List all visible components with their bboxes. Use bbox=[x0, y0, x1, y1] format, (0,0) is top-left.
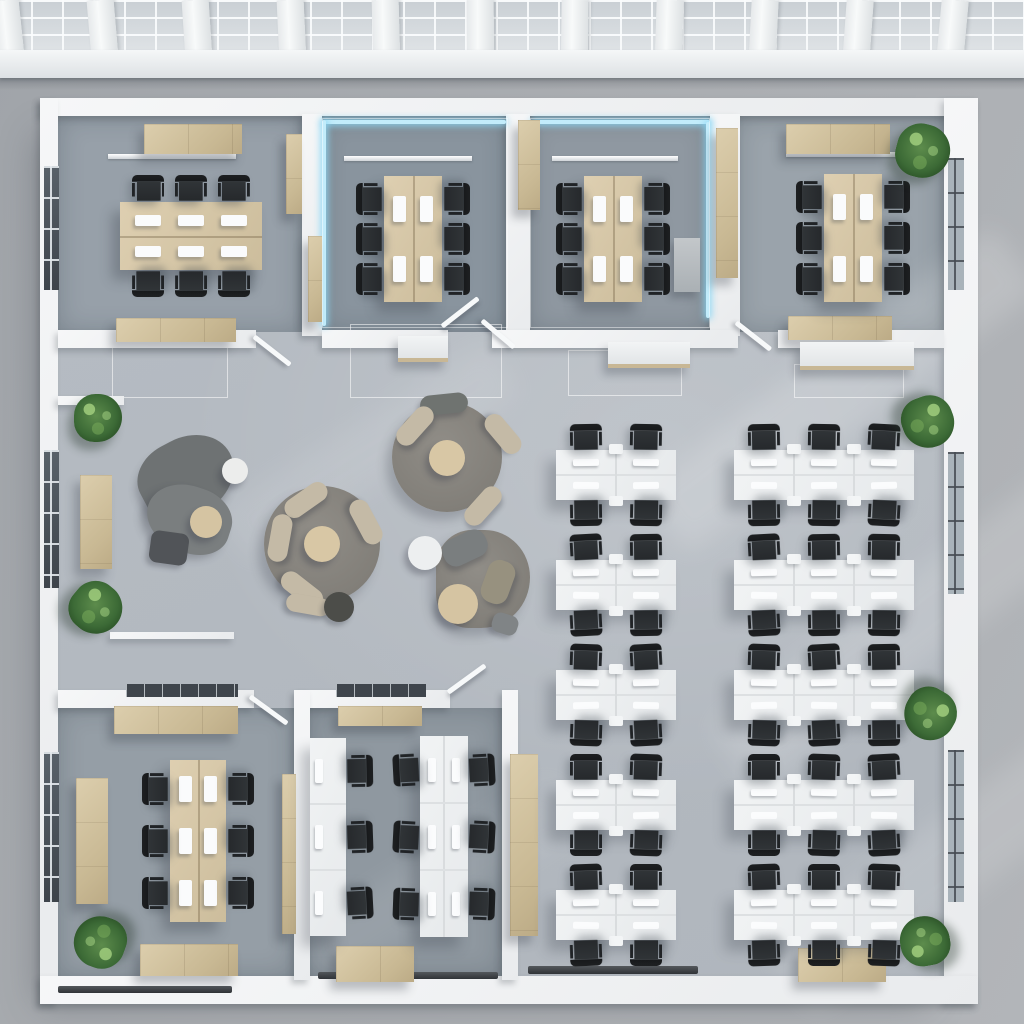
task-chair bbox=[748, 830, 780, 856]
meeting-chair bbox=[444, 263, 470, 295]
credenza bbox=[338, 706, 422, 726]
keyboard bbox=[751, 702, 777, 709]
desk-divider bbox=[853, 780, 855, 830]
notepad bbox=[833, 256, 846, 282]
monitor-mount bbox=[787, 664, 801, 674]
task-chair bbox=[748, 719, 781, 746]
notepad bbox=[204, 828, 217, 854]
desk-seam bbox=[734, 474, 914, 476]
task-chair bbox=[630, 610, 662, 637]
monitor-mount bbox=[609, 884, 623, 894]
desk-divider bbox=[443, 736, 445, 937]
monitor-mount bbox=[787, 444, 801, 454]
wall bbox=[294, 690, 310, 980]
task-chair bbox=[748, 754, 780, 780]
task-chair bbox=[630, 753, 663, 780]
credenza bbox=[786, 124, 890, 154]
keyboard bbox=[633, 569, 659, 576]
keyboard bbox=[871, 592, 897, 599]
desk-divider bbox=[793, 780, 795, 830]
keyboard bbox=[811, 922, 837, 929]
keyboard bbox=[573, 899, 599, 906]
meeting-chair bbox=[644, 263, 670, 295]
task-chair bbox=[748, 863, 781, 890]
keyboard bbox=[751, 679, 777, 686]
notepad bbox=[593, 196, 606, 222]
task-chair bbox=[569, 609, 602, 637]
keyboard bbox=[633, 922, 659, 929]
monitor-mount bbox=[609, 826, 623, 836]
keyboard bbox=[871, 922, 897, 929]
meeting-chair bbox=[644, 223, 670, 255]
desk-bank bbox=[556, 890, 676, 940]
task-chair bbox=[867, 753, 900, 781]
window bbox=[948, 158, 964, 290]
table-seam bbox=[613, 176, 615, 302]
monitor-mount bbox=[787, 826, 801, 836]
keyboard bbox=[452, 758, 460, 782]
meeting-chair bbox=[218, 271, 250, 297]
credenza bbox=[116, 318, 236, 342]
monitor-mount bbox=[609, 664, 623, 674]
monitor-mount bbox=[787, 774, 801, 784]
monitor-mount bbox=[847, 444, 861, 454]
keyboard bbox=[811, 482, 837, 489]
table-seam bbox=[120, 236, 262, 238]
ceiling-light bbox=[108, 154, 236, 159]
meeting-chair bbox=[556, 223, 582, 255]
meeting-chair bbox=[175, 271, 207, 297]
side-table bbox=[190, 506, 222, 538]
notepad bbox=[179, 828, 192, 854]
storage-cabinet bbox=[282, 774, 296, 934]
keyboard bbox=[573, 702, 599, 709]
monitor-mount bbox=[609, 936, 623, 946]
task-chair bbox=[630, 424, 662, 451]
conference-table bbox=[120, 202, 262, 270]
meeting-chair bbox=[356, 263, 382, 295]
task-chair bbox=[570, 939, 603, 966]
keyboard bbox=[811, 789, 837, 796]
desk-bank bbox=[734, 450, 914, 500]
monitor-mount bbox=[847, 936, 861, 946]
desk-bank bbox=[556, 670, 676, 720]
keyboard bbox=[428, 758, 436, 782]
notepad bbox=[393, 196, 406, 222]
window bbox=[44, 752, 59, 902]
meeting-chair bbox=[175, 175, 207, 201]
keyboard bbox=[428, 825, 436, 849]
storage-cabinet bbox=[286, 134, 302, 214]
side-table bbox=[408, 536, 442, 570]
keyboard bbox=[751, 482, 777, 489]
task-chair bbox=[747, 533, 780, 561]
meeting-chair bbox=[884, 263, 910, 295]
notepad bbox=[593, 256, 606, 282]
keyboard bbox=[751, 812, 777, 819]
keyboard bbox=[573, 922, 599, 929]
meeting-chair bbox=[228, 825, 254, 857]
ceiling-fascia bbox=[0, 50, 1024, 78]
glass-balustrade bbox=[112, 344, 228, 398]
notepad bbox=[420, 256, 433, 282]
desk-bank bbox=[734, 560, 914, 610]
notepad bbox=[179, 776, 192, 802]
keyboard bbox=[811, 459, 837, 466]
ceiling-light bbox=[344, 156, 472, 161]
task-chair bbox=[570, 424, 602, 451]
keyboard bbox=[871, 679, 897, 686]
task-chair bbox=[630, 864, 662, 890]
monitor-mount bbox=[787, 936, 801, 946]
conference-table bbox=[824, 174, 882, 302]
keyboard bbox=[871, 482, 897, 490]
keyboard bbox=[573, 482, 599, 489]
keyboard bbox=[573, 812, 599, 819]
meeting-chair bbox=[556, 263, 582, 295]
task-chair bbox=[748, 643, 781, 670]
desk-divider bbox=[615, 890, 617, 940]
task-chair bbox=[868, 863, 901, 890]
keyboard bbox=[633, 459, 659, 466]
meeting-chair bbox=[444, 223, 470, 255]
meeting-chair bbox=[228, 773, 254, 805]
task-chair bbox=[630, 940, 662, 966]
desk-seam bbox=[310, 869, 346, 871]
desk-divider bbox=[793, 890, 795, 940]
desk-divider bbox=[615, 450, 617, 500]
storage-cabinet bbox=[510, 754, 538, 936]
keyboard bbox=[751, 592, 777, 600]
task-chair bbox=[468, 887, 495, 920]
keyboard bbox=[573, 459, 599, 466]
task-chair bbox=[868, 720, 900, 747]
desk-divider bbox=[615, 560, 617, 610]
keyboard bbox=[811, 812, 837, 819]
window bbox=[948, 452, 964, 594]
conference-table bbox=[170, 760, 226, 922]
notepad bbox=[135, 215, 161, 226]
keyboard bbox=[871, 569, 897, 576]
notepad bbox=[393, 256, 406, 282]
desk-divider bbox=[853, 670, 855, 720]
task-chair bbox=[392, 820, 420, 853]
storage-cabinet bbox=[76, 778, 108, 904]
monitor-mount bbox=[609, 606, 623, 616]
ceiling-beam bbox=[181, 0, 211, 53]
task-chair bbox=[468, 820, 496, 853]
credenza bbox=[114, 706, 238, 734]
keyboard bbox=[871, 812, 897, 820]
monitor-mount bbox=[787, 554, 801, 564]
keyboard bbox=[633, 702, 659, 710]
desk-seam bbox=[420, 869, 468, 871]
desk-seam bbox=[310, 803, 346, 805]
task-chair bbox=[808, 610, 840, 637]
meeting-chair bbox=[142, 825, 168, 857]
window bbox=[44, 166, 59, 290]
keyboard bbox=[751, 922, 777, 929]
sideboard bbox=[608, 342, 690, 368]
keyboard bbox=[633, 482, 659, 489]
meeting-chair bbox=[142, 773, 168, 805]
notepad bbox=[221, 215, 247, 226]
desk-divider bbox=[615, 670, 617, 720]
task-chair bbox=[747, 609, 780, 637]
desk-bank bbox=[734, 670, 914, 720]
keyboard bbox=[633, 592, 659, 599]
window bbox=[948, 750, 964, 902]
keyboard bbox=[573, 679, 599, 686]
desk-seam bbox=[734, 914, 914, 916]
wall bbox=[110, 632, 234, 639]
credenza bbox=[336, 946, 414, 982]
meeting-chair bbox=[228, 877, 254, 909]
task-chair bbox=[748, 939, 781, 966]
keyboard bbox=[315, 825, 323, 849]
sideboard bbox=[80, 475, 112, 569]
desk-divider bbox=[853, 890, 855, 940]
conference-table bbox=[584, 176, 642, 302]
side-table bbox=[304, 526, 340, 562]
monitor-mount bbox=[609, 554, 623, 564]
sideboard bbox=[398, 336, 448, 362]
keyboard bbox=[811, 592, 837, 599]
task-chair bbox=[868, 644, 900, 671]
task-chair bbox=[630, 500, 662, 527]
ottoman bbox=[148, 530, 190, 567]
task-chair bbox=[867, 423, 900, 451]
credenza bbox=[140, 944, 238, 976]
credenza bbox=[788, 316, 892, 340]
ceiling-light bbox=[552, 156, 678, 161]
desk-divider bbox=[615, 780, 617, 830]
desk-bank bbox=[556, 780, 676, 830]
task-chair bbox=[346, 886, 374, 919]
monitor-mount bbox=[787, 716, 801, 726]
keyboard bbox=[452, 825, 460, 849]
keyboard bbox=[871, 789, 897, 797]
notepad bbox=[179, 880, 192, 906]
notepad bbox=[860, 194, 873, 220]
ceiling-beam bbox=[655, 0, 684, 52]
desk-seam bbox=[734, 584, 914, 586]
task-chair bbox=[629, 643, 662, 671]
desk-bank bbox=[420, 736, 468, 937]
desk-divider bbox=[793, 670, 795, 720]
meeting-chair bbox=[796, 263, 822, 295]
desk-seam bbox=[734, 804, 914, 806]
task-chair bbox=[346, 821, 373, 854]
monitor-mount bbox=[847, 664, 861, 674]
desk-bank bbox=[556, 450, 676, 500]
keyboard bbox=[573, 592, 599, 600]
meeting-chair bbox=[884, 181, 910, 213]
desk-divider bbox=[853, 450, 855, 500]
keyboard bbox=[871, 702, 897, 709]
monitor-mount bbox=[609, 716, 623, 726]
monitor-mount bbox=[847, 554, 861, 564]
notepad bbox=[620, 256, 633, 282]
meeting-chair bbox=[356, 223, 382, 255]
storage-cabinet bbox=[716, 128, 738, 278]
monitor-mount bbox=[847, 826, 861, 836]
task-chair bbox=[868, 610, 900, 637]
task-chair bbox=[468, 753, 496, 786]
task-chair bbox=[808, 424, 840, 451]
keyboard bbox=[811, 899, 837, 906]
monitor-mount bbox=[609, 444, 623, 454]
keyboard bbox=[633, 679, 659, 687]
meeting-chair bbox=[796, 222, 822, 254]
task-chair bbox=[808, 829, 841, 856]
task-chair bbox=[570, 500, 602, 527]
task-chair bbox=[807, 719, 840, 747]
meeting-chair bbox=[644, 183, 670, 215]
task-chair bbox=[808, 753, 841, 780]
ceiling-beam bbox=[466, 0, 493, 52]
keyboard bbox=[871, 899, 897, 906]
keyboard bbox=[452, 892, 460, 916]
notepad bbox=[135, 246, 161, 257]
window bbox=[44, 450, 59, 588]
meeting-chair bbox=[884, 222, 910, 254]
task-chair bbox=[630, 534, 662, 561]
meeting-chair bbox=[556, 183, 582, 215]
keyboard bbox=[751, 789, 777, 796]
meeting-chair bbox=[132, 175, 164, 201]
keyboard bbox=[633, 899, 659, 906]
task-chair bbox=[808, 864, 840, 890]
conference-table bbox=[384, 176, 442, 302]
monitor-mount bbox=[787, 884, 801, 894]
keyboard bbox=[633, 789, 659, 796]
task-chair bbox=[392, 887, 419, 920]
meeting-chair bbox=[796, 181, 822, 213]
ceiling-beam bbox=[843, 0, 874, 53]
storage-cabinet bbox=[308, 236, 322, 322]
task-chair bbox=[630, 829, 663, 856]
desk-bank bbox=[734, 890, 914, 940]
keyboard bbox=[573, 569, 599, 577]
ceiling-beam bbox=[86, 0, 117, 53]
task-chair bbox=[392, 753, 420, 786]
keyboard bbox=[573, 789, 599, 796]
ceiling-beam bbox=[371, 0, 399, 52]
office-floor-plan-render: Top-down 3D render of an open-plan offic… bbox=[0, 0, 1024, 1024]
table-seam bbox=[853, 174, 855, 302]
desk-divider bbox=[853, 560, 855, 610]
task-chair bbox=[867, 829, 900, 857]
task-chair bbox=[748, 424, 780, 451]
table-seam bbox=[413, 176, 415, 302]
side-table bbox=[222, 458, 248, 484]
keyboard bbox=[633, 812, 659, 819]
transom-window bbox=[126, 684, 238, 697]
table-seam bbox=[198, 760, 200, 922]
notepad bbox=[178, 246, 204, 257]
keyboard bbox=[811, 569, 837, 576]
side-table bbox=[438, 584, 478, 624]
notepad bbox=[620, 196, 633, 222]
desk-bank bbox=[556, 560, 676, 610]
task-chair bbox=[570, 830, 602, 856]
ceiling-shadow bbox=[0, 78, 1024, 90]
task-chair bbox=[569, 533, 602, 561]
monitor-mount bbox=[787, 606, 801, 616]
monitor-mount bbox=[847, 716, 861, 726]
monitor-mount bbox=[609, 496, 623, 506]
task-chair bbox=[808, 534, 840, 561]
credenza bbox=[144, 124, 242, 154]
notepad bbox=[204, 776, 217, 802]
meeting-chair bbox=[444, 183, 470, 215]
keyboard bbox=[428, 892, 436, 916]
keyboard bbox=[751, 899, 777, 906]
desk-bank bbox=[310, 738, 346, 936]
task-chair bbox=[808, 500, 840, 527]
monitor-mount bbox=[609, 774, 623, 784]
desk-divider bbox=[793, 450, 795, 500]
sideboard bbox=[800, 342, 914, 370]
keyboard bbox=[811, 702, 837, 710]
monitor-mount bbox=[847, 774, 861, 784]
task-chair bbox=[570, 643, 603, 670]
notepad bbox=[420, 196, 433, 222]
keyboard bbox=[315, 891, 323, 915]
transom-window bbox=[336, 684, 426, 697]
notepad bbox=[178, 215, 204, 226]
desk-seam bbox=[420, 802, 468, 804]
keyboard bbox=[751, 569, 777, 577]
meeting-chair bbox=[132, 271, 164, 297]
task-chair bbox=[868, 939, 901, 966]
ceiling-beam bbox=[276, 0, 305, 53]
monitor-mount bbox=[847, 884, 861, 894]
notepad bbox=[833, 194, 846, 220]
monitor-mount bbox=[847, 496, 861, 506]
task-chair bbox=[808, 940, 840, 966]
side-table bbox=[429, 440, 465, 476]
monitor-mount bbox=[847, 606, 861, 616]
ceiling-beam bbox=[749, 0, 779, 53]
task-chair bbox=[807, 643, 840, 671]
ceiling-beam bbox=[561, 0, 589, 52]
meeting-chair bbox=[356, 183, 382, 215]
storage-cabinet bbox=[518, 120, 540, 210]
task-chair bbox=[868, 534, 900, 561]
keyboard bbox=[751, 459, 777, 466]
floor-track bbox=[58, 986, 232, 993]
task-chair bbox=[867, 499, 900, 527]
task-chair bbox=[347, 755, 374, 787]
meeting-chair bbox=[142, 877, 168, 909]
notepad bbox=[204, 880, 217, 906]
meeting-chair bbox=[218, 175, 250, 201]
task-chair bbox=[570, 719, 603, 746]
ceiling-beam bbox=[937, 0, 969, 53]
notepad bbox=[860, 256, 873, 282]
task-chair bbox=[748, 500, 780, 527]
desk-divider bbox=[793, 560, 795, 610]
desk-bank bbox=[734, 780, 914, 830]
keyboard bbox=[871, 459, 897, 467]
task-chair bbox=[570, 754, 602, 780]
desk-seam bbox=[734, 694, 914, 696]
keyboard bbox=[811, 679, 837, 687]
console-table bbox=[674, 238, 700, 292]
keyboard bbox=[315, 759, 323, 783]
